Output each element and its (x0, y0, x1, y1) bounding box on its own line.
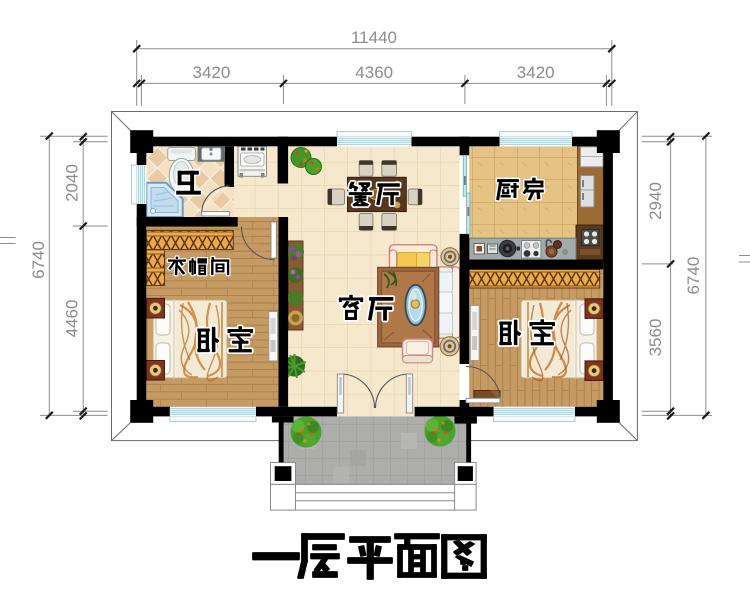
svg-text:2040: 2040 (63, 164, 82, 202)
svg-text:3560: 3560 (646, 319, 665, 357)
svg-text:4460: 4460 (63, 300, 82, 338)
svg-text:6740: 6740 (29, 241, 48, 279)
svg-text:3420: 3420 (192, 63, 230, 82)
svg-text:2940: 2940 (646, 182, 665, 220)
svg-text:6740: 6740 (684, 257, 703, 295)
svg-text:3420: 3420 (517, 63, 555, 82)
svg-text:11440: 11440 (351, 28, 397, 47)
svg-text:4360: 4360 (355, 63, 393, 82)
